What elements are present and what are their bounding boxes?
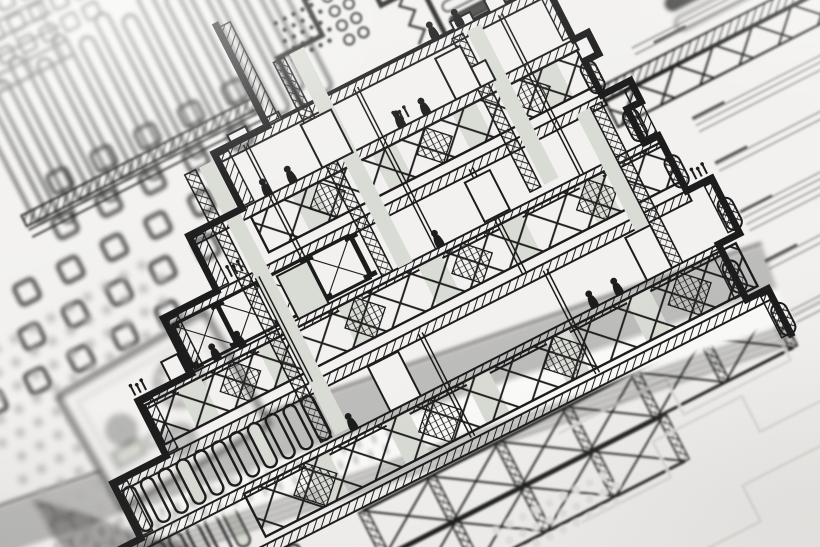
photo-of-architectural-print <box>0 0 820 547</box>
architectural-section-drawing <box>0 0 820 547</box>
